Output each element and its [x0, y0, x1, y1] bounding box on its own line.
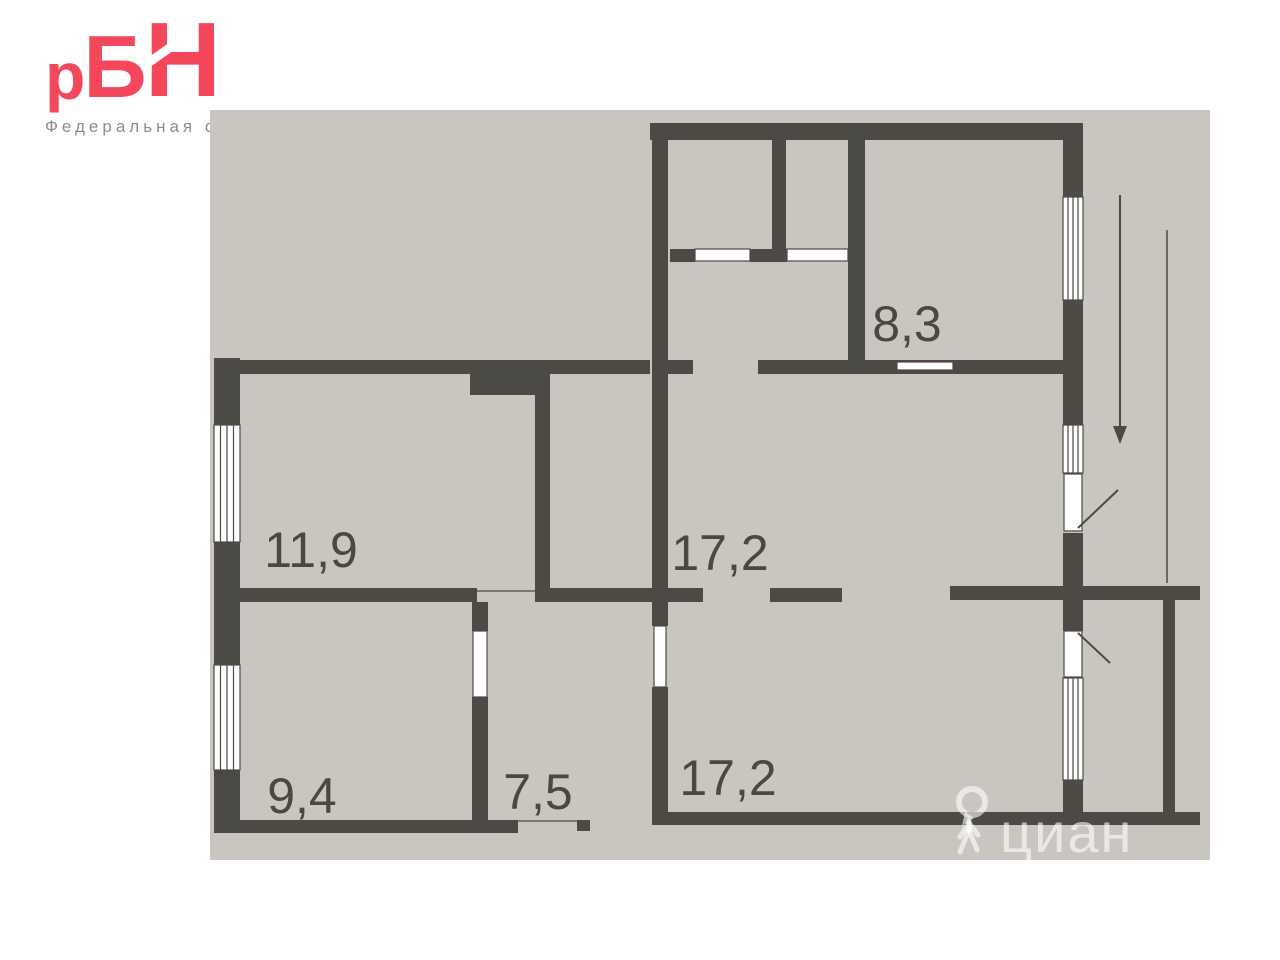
window [1063, 425, 1083, 473]
wall [470, 362, 535, 395]
wall [950, 586, 1200, 600]
wall [1163, 595, 1175, 825]
wall [472, 602, 488, 631]
wall [652, 123, 668, 626]
wall [772, 138, 786, 249]
floor-plan-image: 8,3 11,9 17,2 17,2 9,4 7,5 циан [210, 110, 1210, 860]
door-slot [1064, 474, 1082, 531]
floor-plan: 8,3 11,9 17,2 17,2 9,4 7,5 циан [210, 110, 1210, 860]
wall [535, 360, 550, 602]
wall [1063, 533, 1083, 631]
wall [1063, 140, 1083, 197]
cian-watermark-text: циан [1000, 801, 1133, 860]
window [214, 665, 240, 770]
rbn-logo: р Б Н [45, 18, 305, 103]
room-area-label: 7,5 [503, 764, 573, 820]
wall [214, 360, 650, 374]
logo-letter-r: р [45, 50, 83, 103]
door-slot [695, 249, 750, 261]
window [1063, 678, 1083, 780]
room-area-label: 9,4 [267, 768, 337, 824]
wall [652, 687, 668, 825]
wall [537, 588, 703, 602]
plan-background [210, 110, 1210, 860]
logo-letter-b: Б [83, 32, 144, 102]
room-area-label: 17,2 [679, 750, 776, 806]
room-area-label: 17,2 [671, 525, 768, 581]
wall [214, 588, 477, 602]
wall [670, 249, 695, 262]
door-slot [1064, 631, 1082, 677]
door-slot [787, 249, 848, 261]
wall [214, 358, 240, 425]
wall [472, 697, 488, 822]
wall [668, 360, 693, 374]
logo-letter-n: Н [145, 18, 220, 103]
wall [848, 138, 865, 372]
room-area-label: 8,3 [872, 296, 942, 352]
wall [214, 542, 240, 665]
wall [650, 123, 1083, 140]
door-slot [897, 362, 953, 370]
door-slot [473, 631, 487, 697]
window [214, 425, 240, 542]
door-slot [654, 626, 666, 687]
page: р Б Н Федеральная сеть [0, 0, 1280, 960]
room-area-label: 11,9 [264, 522, 358, 578]
window [1063, 197, 1083, 300]
wall [577, 820, 590, 831]
wall [750, 249, 787, 262]
wall [214, 820, 518, 833]
wall [770, 588, 842, 602]
